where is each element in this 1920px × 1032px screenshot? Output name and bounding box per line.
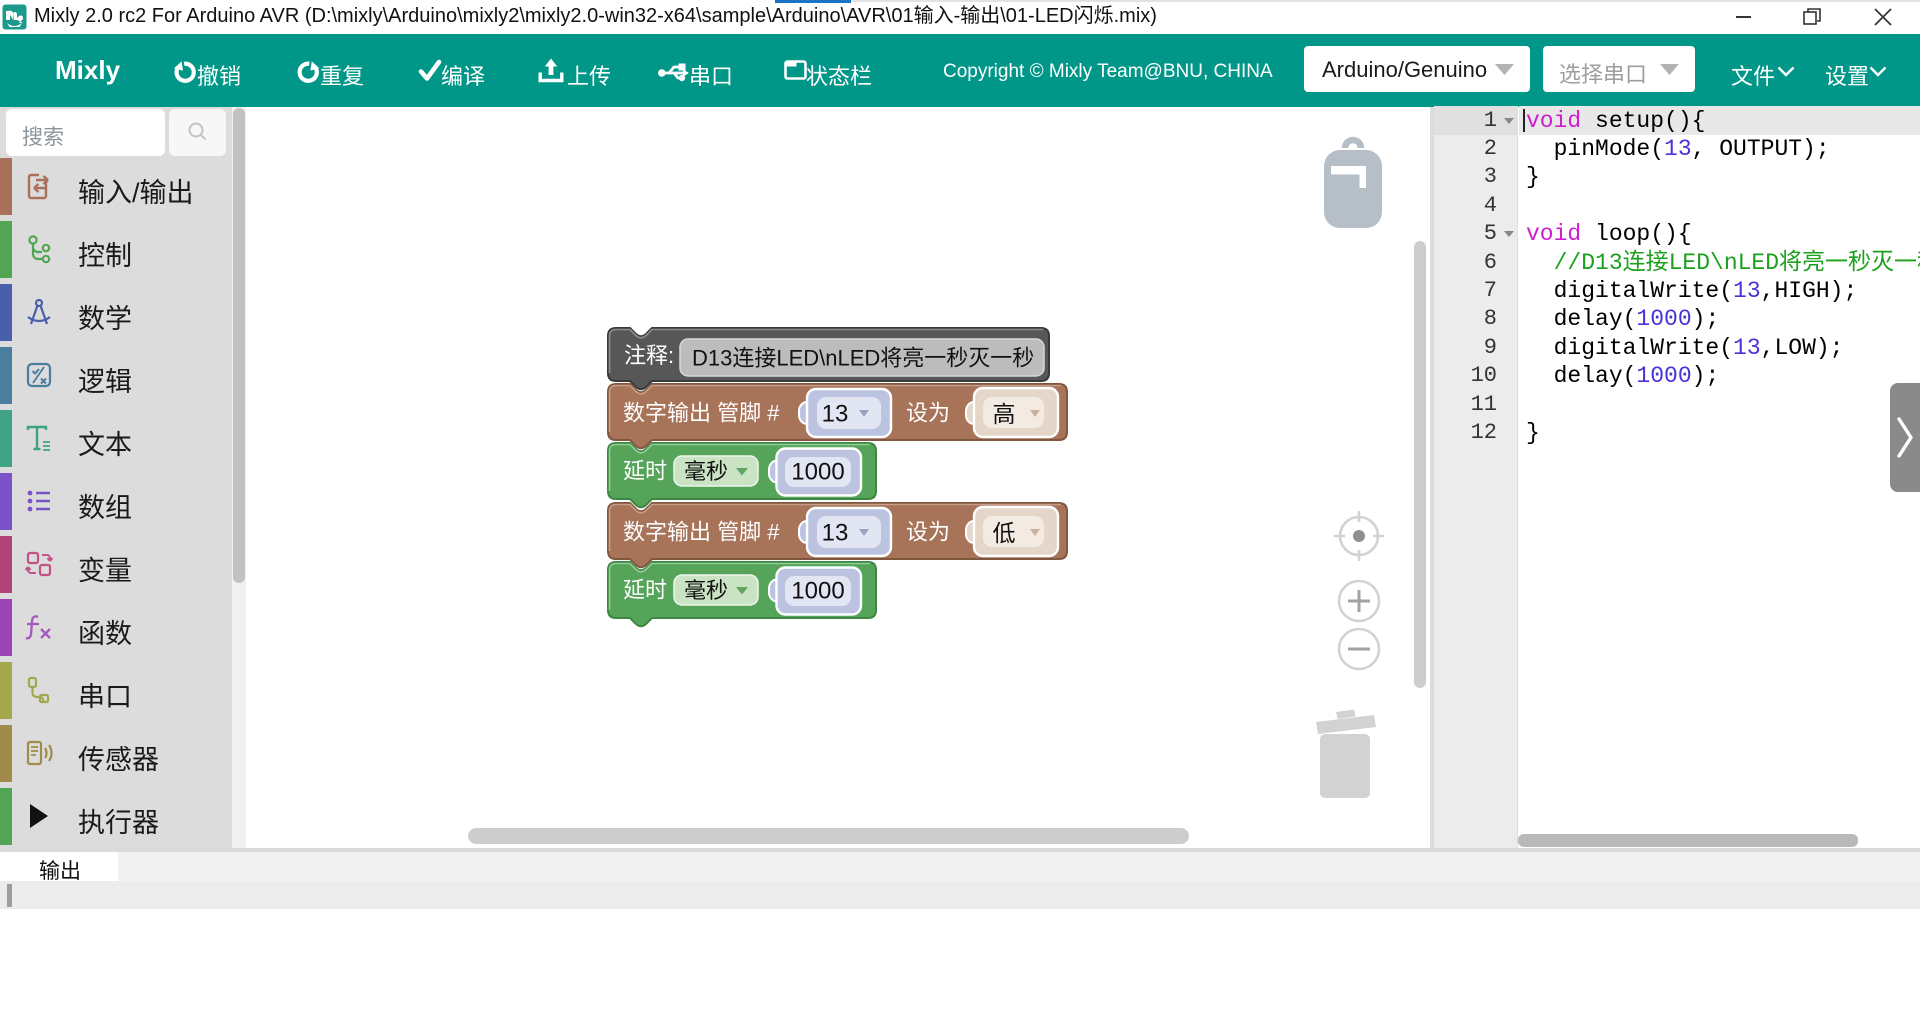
svg-text:毫秒: 毫秒 (684, 459, 728, 484)
svg-text:注释:: 注释: (624, 343, 674, 368)
svg-text:1000: 1000 (791, 578, 844, 605)
svg-text:数字输出 管脚 #: 数字输出 管脚 # (623, 520, 780, 545)
svg-text:延时: 延时 (623, 578, 667, 603)
svg-text:毫秒: 毫秒 (684, 578, 728, 603)
svg-text:数字输出 管脚 #: 数字输出 管脚 # (623, 401, 780, 426)
svg-text:13: 13 (822, 520, 849, 547)
svg-text:D13连接LED\nLED将亮一秒灭一秒: D13连接LED\nLED将亮一秒灭一秒 (692, 346, 1034, 371)
svg-text:低: 低 (993, 520, 1016, 546)
svg-text:高: 高 (993, 401, 1016, 427)
svg-text:延时: 延时 (623, 459, 667, 484)
svg-text:设为: 设为 (906, 401, 950, 426)
svg-text:设为: 设为 (906, 520, 950, 545)
svg-text:1000: 1000 (791, 459, 844, 486)
svg-text:13: 13 (822, 401, 849, 428)
